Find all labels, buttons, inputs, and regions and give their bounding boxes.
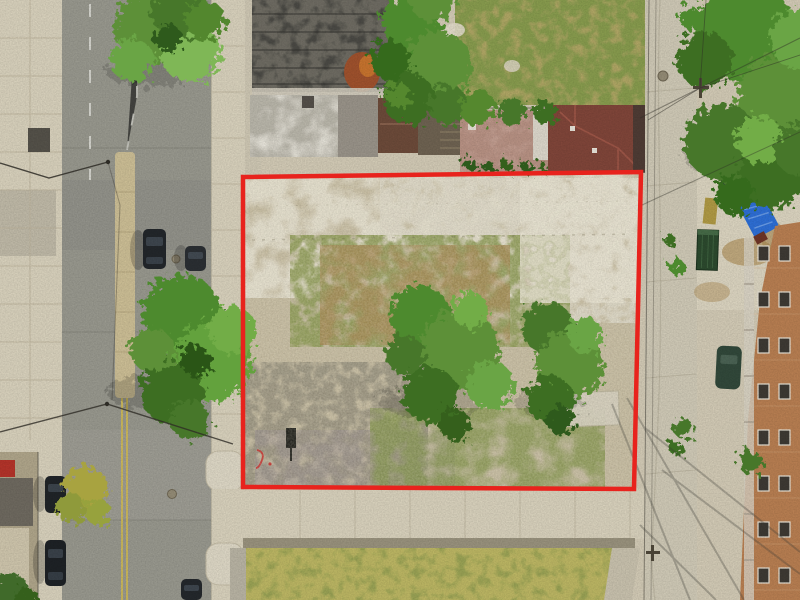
aerial-photo (0, 0, 800, 600)
pole-top-2 (105, 402, 109, 406)
screenshot (0, 0, 800, 600)
tree-canopy-top-left (105, 0, 225, 86)
pole-top (106, 160, 110, 164)
